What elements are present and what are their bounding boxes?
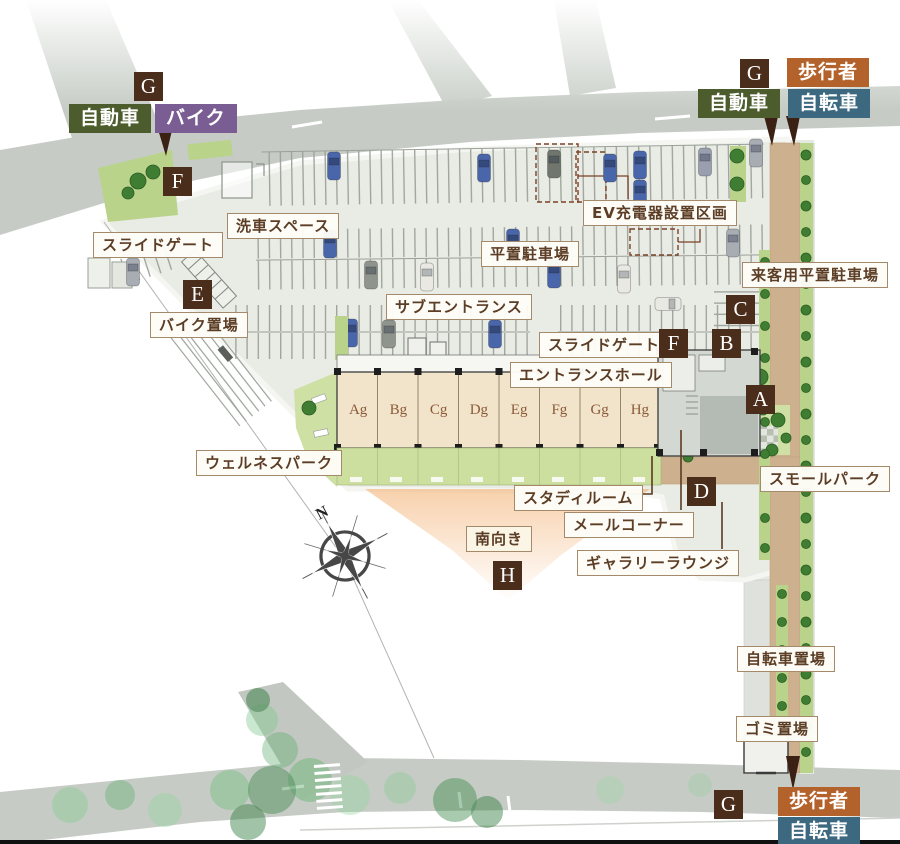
unit-label-cg: Cg xyxy=(419,374,459,446)
marker-e-west: E xyxy=(183,280,212,309)
marker-f-northwest: F xyxy=(163,167,192,196)
label-entrance-hall: エントランスホール xyxy=(510,362,672,388)
marker-f-east: F xyxy=(659,329,688,358)
label-bicycle-parking: 自転車置場 xyxy=(737,646,835,672)
label-small-park: スモールパーク xyxy=(760,466,890,492)
marker-h: H xyxy=(493,561,522,590)
marker-c: C xyxy=(726,295,755,324)
unit-label-dg: Dg xyxy=(459,374,499,446)
label-car-wash: 洗車スペース xyxy=(227,213,339,239)
label-garbage-area: ゴミ置場 xyxy=(736,716,818,742)
tag-pedestrian-south: 歩行者 xyxy=(778,787,860,816)
label-wellness-park: ウェルネスパーク xyxy=(196,450,342,476)
label-gallery-lounge: ギャラリーラウンジ xyxy=(577,550,739,576)
label-ev-charger: EV充電器設置区画 xyxy=(583,200,737,226)
label-visitor-parking: 来客用平置駐車場 xyxy=(742,262,888,288)
label-bike-parking: バイク置場 xyxy=(150,312,248,338)
marker-g-northeast: G xyxy=(740,59,769,88)
marker-g-south: G xyxy=(714,790,743,819)
label-sub-entrance: サブエントランス xyxy=(386,294,532,320)
west-structure xyxy=(88,258,110,288)
label-slide-gate-east: スライドゲート xyxy=(539,332,669,358)
tag-pedestrian-northeast: 歩行者 xyxy=(787,58,869,87)
bottom-border-bar xyxy=(0,840,900,844)
tag-bike-northwest: バイク xyxy=(155,104,237,133)
compass-north-label: N xyxy=(313,503,332,524)
marker-b: B xyxy=(712,329,741,358)
label-south-facing: 南向き xyxy=(466,526,532,552)
marker-d: D xyxy=(687,477,716,506)
tag-bicycle-northeast: 自転車 xyxy=(788,89,870,118)
unit-label-ag: Ag xyxy=(338,374,378,446)
label-flat-parking: 平置駐車場 xyxy=(481,241,579,267)
tag-car-northwest: 自動車 xyxy=(69,104,151,133)
site-plan: N Ag Bg Cg Dg Eg Fg Gg Hg G F E G C B F … xyxy=(0,0,900,844)
tag-car-northeast: 自動車 xyxy=(698,89,780,118)
marker-a: A xyxy=(746,385,775,414)
label-study-room: スタディルーム xyxy=(514,485,643,511)
label-mail-corner: メールコーナー xyxy=(564,512,694,538)
tag-bicycle-south: 自転車 xyxy=(778,817,860,844)
label-slide-gate-west: スライドゲート xyxy=(93,232,223,258)
unit-label-bg: Bg xyxy=(378,374,418,446)
marker-g-northwest: G xyxy=(134,72,163,101)
